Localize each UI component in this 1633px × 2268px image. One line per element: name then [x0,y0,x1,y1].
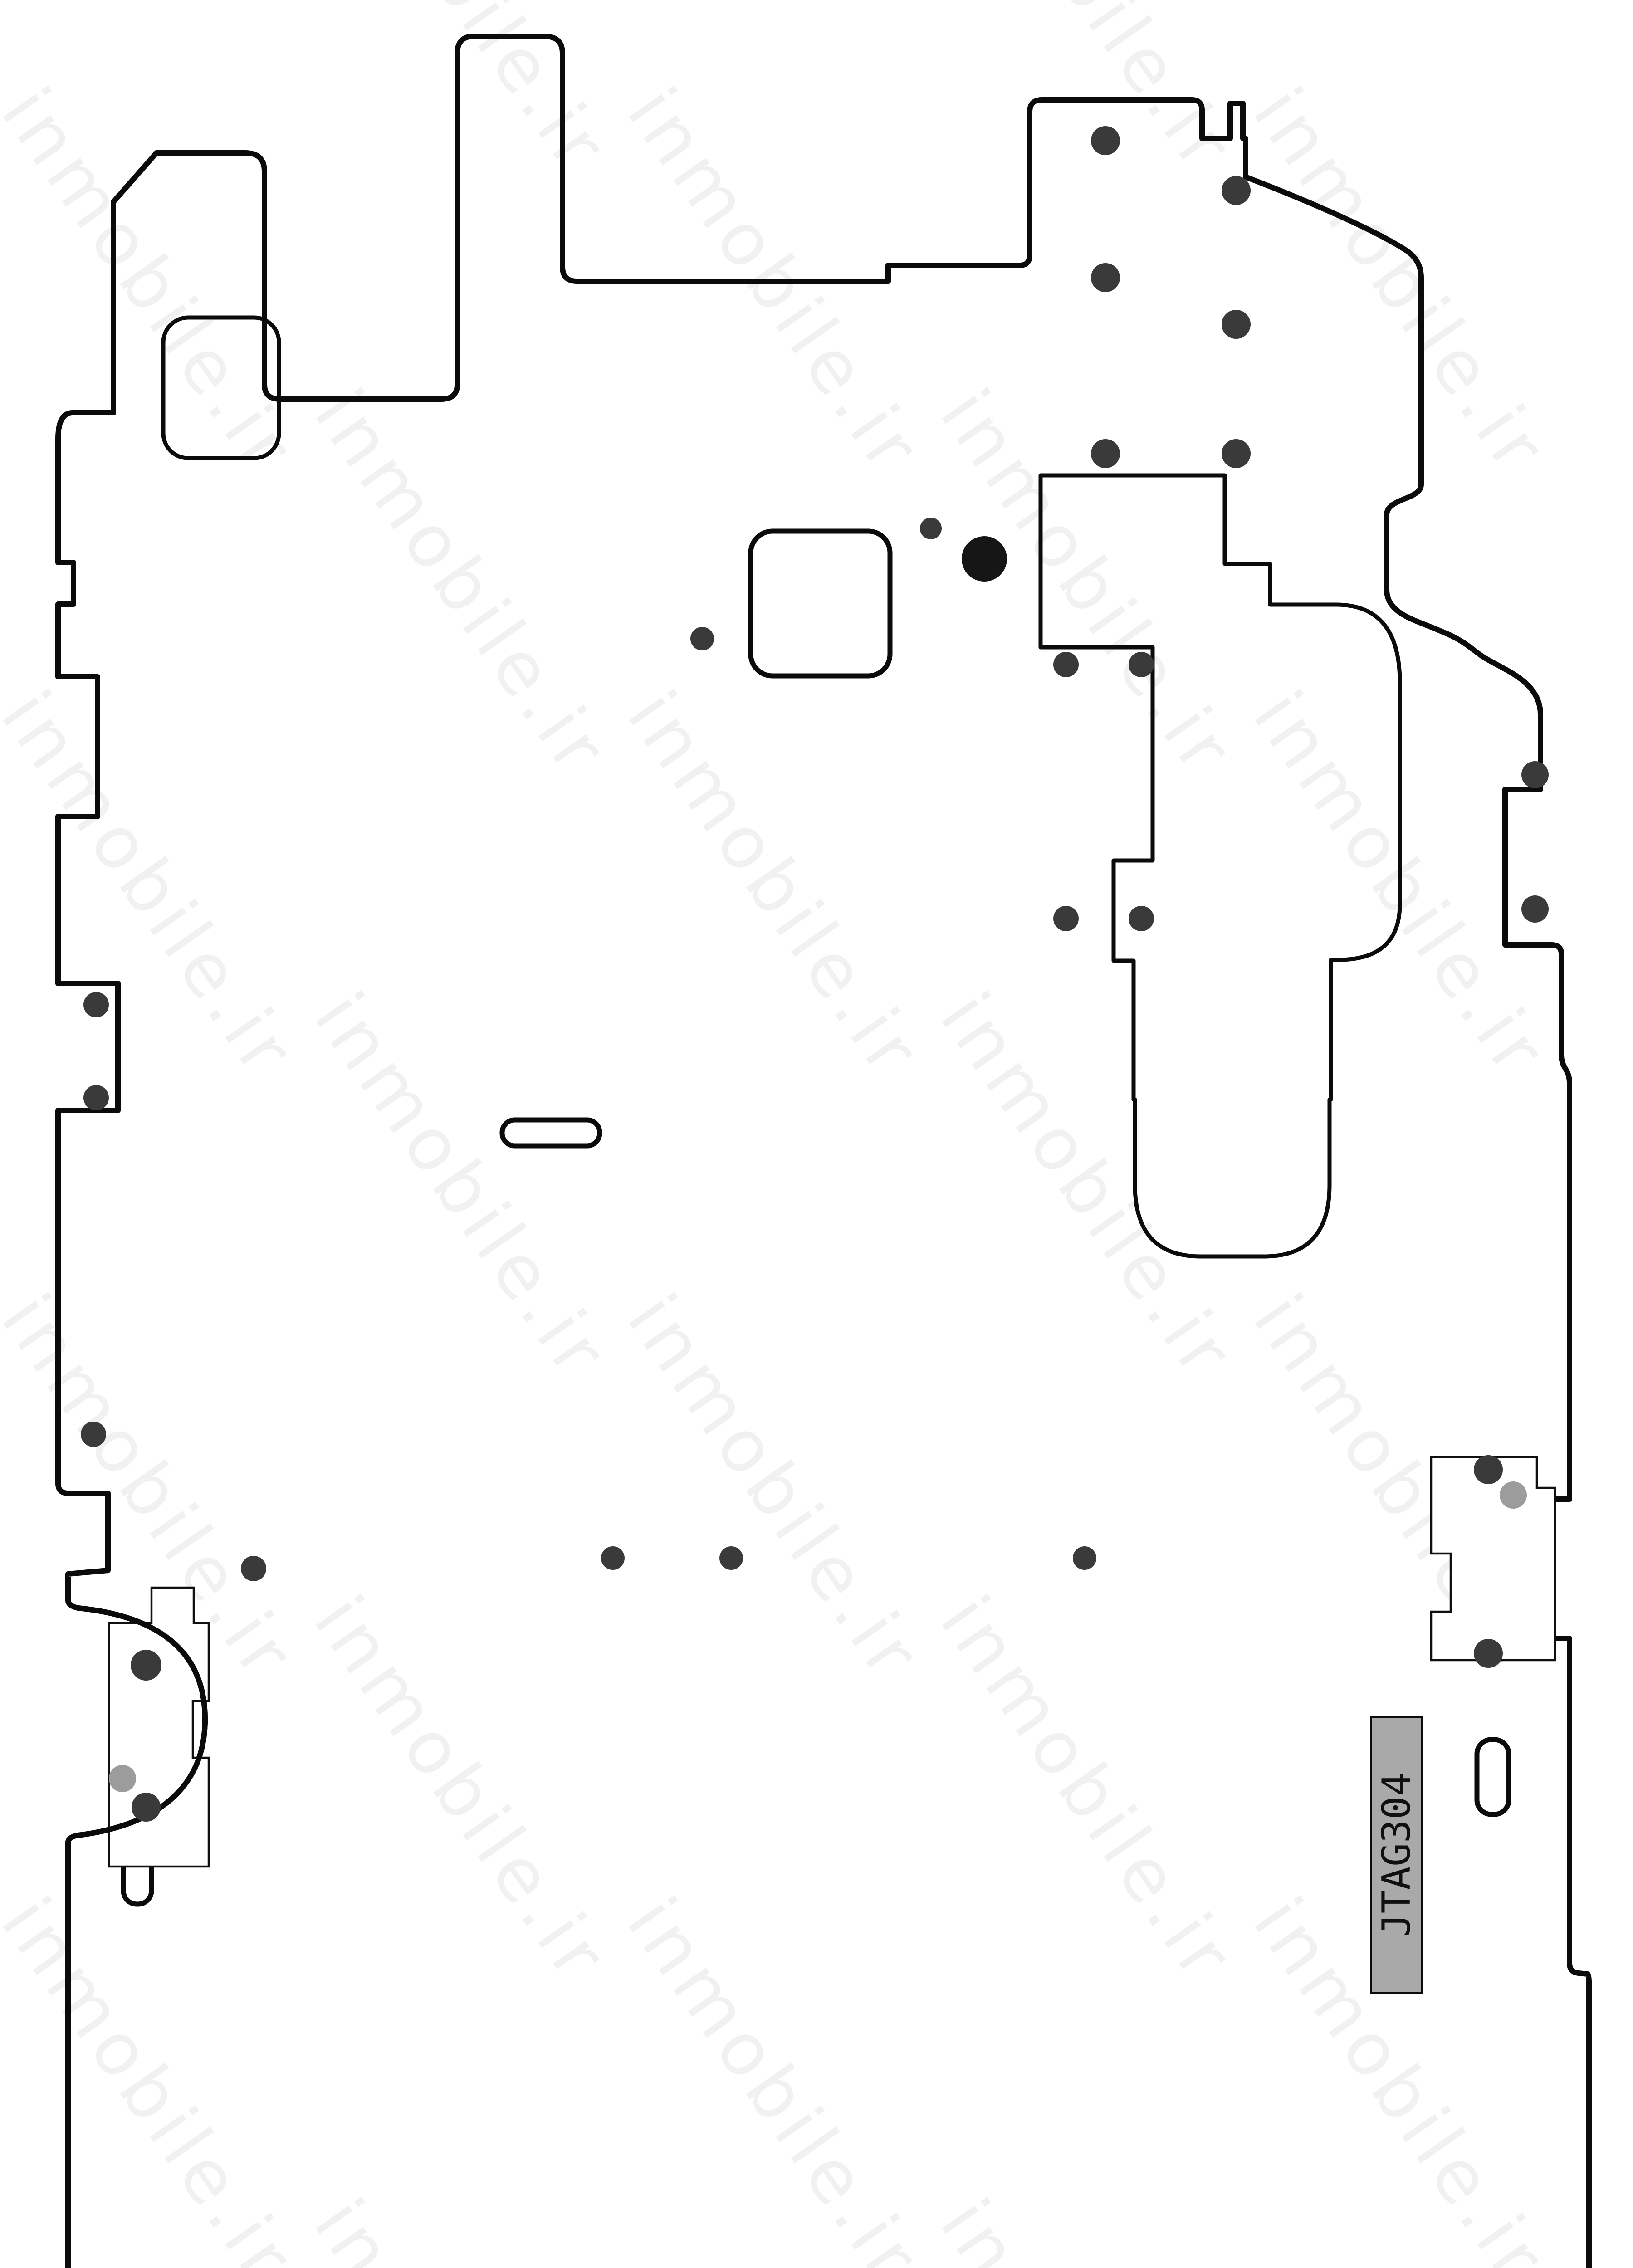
test-point-dot [1222,176,1251,205]
diagram-canvas: inmobile.irinmobile.irinmobile.irinmobil… [0,0,1633,2268]
test-point-dot [1521,761,1549,788]
test-point-dot [132,1793,161,1822]
test-point-dot [83,1085,109,1110]
test-point-dot [690,627,714,650]
test-point-gray [109,1765,136,1792]
camera-cutout [163,318,279,458]
square-cutout [751,531,890,676]
test-point-dot [1222,439,1251,468]
large-inner-cutout [1041,475,1400,1256]
test-point-dot [81,1422,106,1447]
screw-hole-black [962,536,1007,582]
test-point-dot [1053,652,1079,677]
test-point-dot [1222,310,1251,339]
test-point-dot [1091,263,1120,292]
jtag-connector: JTAG304 [1371,1717,1422,1993]
test-point-dot [719,1546,743,1570]
test-point-dot [1474,1639,1503,1668]
board-diagram: JTAG304 CN500 MIC500 [0,0,1633,2268]
test-point-dot [131,1650,161,1681]
test-point-dot [1073,1546,1096,1570]
test-point-dot [920,518,942,539]
test-point-dot [1474,1455,1503,1484]
center-pill-slot [502,1120,600,1146]
right-side-slot [1477,1740,1509,1814]
test-point-gray [1500,1481,1527,1509]
test-point-dot [241,1556,266,1581]
test-point-dot [1053,906,1079,931]
test-point-dot [1091,439,1120,468]
test-point-dot [601,1546,625,1570]
test-point-dot [1129,652,1154,677]
board-outline [58,36,1589,2268]
jtag-label: JTAG304 [1374,1773,1419,1937]
test-point-dot [1129,906,1154,931]
test-point-dot [1091,126,1120,155]
test-point-dot [83,992,109,1017]
test-point-dot [1521,895,1549,923]
right-bracket-shape [1431,1457,1555,1660]
